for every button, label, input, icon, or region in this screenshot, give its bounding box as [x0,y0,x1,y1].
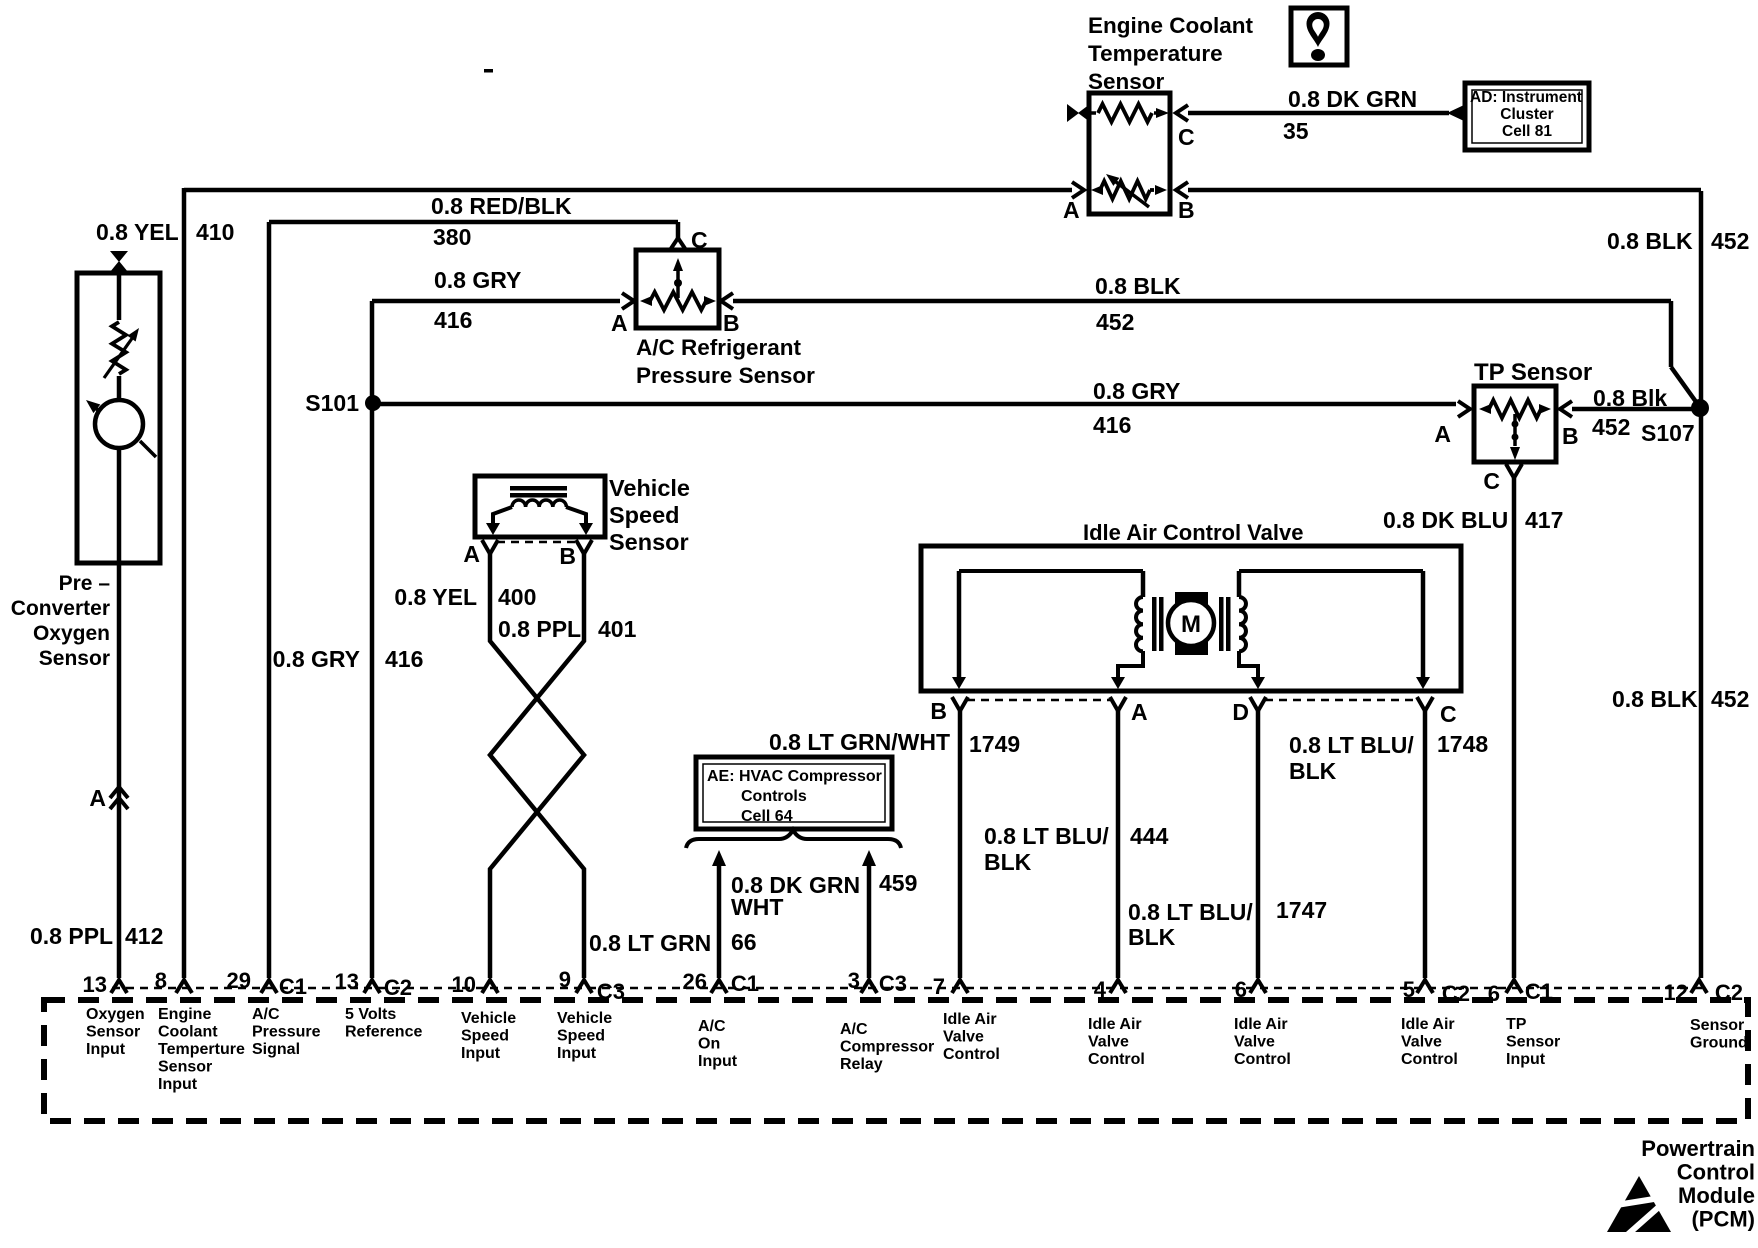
svg-text:TP: TP [1506,1016,1527,1033]
svg-text:0.8 PPL: 0.8 PPL [498,616,581,642]
svg-text:0.8 LT BLU/: 0.8 LT BLU/ [1289,732,1414,758]
svg-text:A: A [1434,421,1451,447]
svg-text:Compressor: Compressor [840,1039,934,1056]
svg-text:Sensor: Sensor [609,529,689,555]
svg-text:AE: HVAC Compressor: AE: HVAC Compressor [707,768,882,785]
svg-text:Vehicle: Vehicle [461,1010,516,1027]
svg-text:Sensor: Sensor [158,1059,212,1076]
svg-text:Sensor: Sensor [1690,1017,1744,1034]
svg-text:On: On [698,1036,720,1053]
svg-text:A: A [611,310,628,336]
svg-text:A: A [463,541,480,567]
svg-text:35: 35 [1283,118,1309,144]
svg-text:Powertrain: Powertrain [1641,1136,1755,1161]
svg-text:8: 8 [155,968,167,993]
svg-text:0.8 GRY: 0.8 GRY [1093,378,1180,404]
svg-text:Cell 64: Cell 64 [741,808,793,825]
svg-text:Temperature: Temperature [1088,41,1223,66]
svg-text:Input: Input [86,1041,126,1058]
svg-text:0.8 DK BLU: 0.8 DK BLU [1383,507,1508,533]
svg-text:Valve: Valve [1234,1034,1275,1051]
svg-text:7: 7 [933,974,945,999]
svg-text:Idle Air: Idle Air [1401,1016,1455,1033]
svg-text:Engine Coolant: Engine Coolant [1088,13,1254,38]
svg-text:C3: C3 [597,979,625,1004]
svg-text:Speed: Speed [557,1028,605,1045]
svg-text:452: 452 [1096,309,1134,335]
svg-text:0.8 LT GRN: 0.8 LT GRN [589,930,711,956]
svg-text:M: M [1181,611,1201,638]
svg-text:Converter: Converter [11,597,110,620]
svg-text:C2: C2 [1442,981,1470,1006]
svg-text:0.8 BLK: 0.8 BLK [1612,686,1698,712]
svg-text:Idle Air: Idle Air [943,1011,997,1028]
svg-text:Oxygen: Oxygen [86,1006,145,1023]
svg-text:A/C: A/C [698,1018,726,1035]
svg-text:A/C Refrigerant: A/C Refrigerant [636,335,802,360]
svg-text:A/C: A/C [252,1006,280,1023]
svg-text:452: 452 [1711,686,1749,712]
svg-text:Sensor: Sensor [1088,69,1165,94]
svg-text:TP Sensor: TP Sensor [1474,359,1592,386]
svg-text:Idle Air Control Valve: Idle Air Control Valve [1083,520,1303,545]
svg-text:B: B [1562,423,1579,449]
svg-text:0.8 LT GRN/WHT: 0.8 LT GRN/WHT [769,729,950,755]
svg-text:Relay: Relay [840,1056,883,1073]
svg-text:459: 459 [879,870,917,896]
svg-text:C3: C3 [879,971,907,996]
svg-text:Input: Input [158,1076,198,1093]
svg-text:452: 452 [1592,414,1630,440]
svg-text:Speed: Speed [609,502,680,528]
svg-text:Reference: Reference [345,1024,422,1041]
svg-text:Cell 81: Cell 81 [1502,123,1552,140]
svg-text:S101: S101 [305,390,359,416]
svg-text:C: C [691,227,708,253]
svg-text:412: 412 [125,923,163,949]
svg-text:C: C [1483,468,1500,494]
svg-text:380: 380 [433,224,471,250]
svg-text:B: B [930,698,947,724]
svg-text:416: 416 [434,307,472,333]
svg-text:C1: C1 [731,971,759,996]
svg-text:3: 3 [848,968,860,993]
svg-text:0.8 LT BLU/: 0.8 LT BLU/ [984,823,1109,849]
svg-text:Control: Control [1401,1051,1458,1068]
svg-text:Module: Module [1678,1183,1755,1208]
svg-text:C: C [1440,701,1457,727]
svg-text:0.8 RED/BLK: 0.8 RED/BLK [431,193,572,219]
svg-text:452: 452 [1711,228,1749,254]
svg-text:1747: 1747 [1276,897,1327,923]
svg-text:D: D [1232,699,1249,725]
svg-text:A: A [1063,197,1080,223]
svg-text:Pressure Sensor: Pressure Sensor [636,363,815,388]
svg-text:Sensor: Sensor [1506,1034,1560,1051]
svg-text:400: 400 [498,584,536,610]
svg-text:AD: Instrument: AD: Instrument [1470,89,1582,106]
svg-text:Speed: Speed [461,1028,509,1045]
svg-text:0.8 GRY: 0.8 GRY [434,267,521,293]
svg-text:B: B [559,543,576,569]
svg-text:417: 417 [1525,507,1563,533]
svg-text:Input: Input [461,1045,501,1062]
svg-text:66: 66 [731,929,757,955]
svg-text:0.8 YEL: 0.8 YEL [394,584,477,610]
svg-text:C2: C2 [384,975,412,1000]
svg-text:9: 9 [559,967,571,992]
svg-text:444: 444 [1130,823,1169,849]
svg-text:6: 6 [1488,981,1500,1006]
svg-text:Vehicle: Vehicle [609,475,690,501]
svg-text:1748: 1748 [1437,731,1488,757]
svg-text:10: 10 [452,972,476,997]
svg-text:26: 26 [683,969,707,994]
svg-text:Coolant: Coolant [158,1024,218,1041]
svg-text:Engine: Engine [158,1006,211,1023]
svg-text:Oxygen: Oxygen [33,622,110,645]
svg-text:0.8 BLK: 0.8 BLK [1607,228,1693,254]
svg-text:(PCM): (PCM) [1691,1207,1755,1232]
svg-text:416: 416 [385,646,423,672]
svg-text:S107: S107 [1641,420,1695,446]
svg-text:Input: Input [557,1045,597,1062]
svg-text:0.8 Blk: 0.8 Blk [1593,385,1667,411]
svg-text:0.8 DK GRN: 0.8 DK GRN [1288,86,1417,112]
svg-text:Valve: Valve [1401,1034,1442,1051]
svg-text:A/C: A/C [840,1021,868,1038]
svg-text:Control: Control [1677,1160,1755,1185]
svg-text:Signal: Signal [252,1041,300,1058]
svg-text:Ground: Ground [1690,1035,1748,1052]
svg-text:Control: Control [1234,1051,1291,1068]
svg-text:C2: C2 [1715,980,1743,1005]
svg-text:1749: 1749 [969,731,1020,757]
svg-text:Idle Air: Idle Air [1088,1016,1142,1033]
svg-text:4: 4 [1094,977,1107,1002]
svg-text:0.8 GRY: 0.8 GRY [273,646,360,672]
svg-text:Temperture: Temperture [158,1041,245,1058]
svg-text:Input: Input [698,1053,738,1070]
svg-text:5 Volts: 5 Volts [345,1006,396,1023]
svg-text:Input: Input [1506,1051,1546,1068]
svg-text:B: B [723,310,740,336]
svg-text:410: 410 [196,219,234,245]
svg-text:A: A [89,785,106,811]
svg-text:0.8 BLK: 0.8 BLK [1095,273,1181,299]
svg-text:Cluster: Cluster [1500,106,1553,123]
svg-text:Sensor: Sensor [86,1024,140,1041]
svg-text:0.8 LT BLU/: 0.8 LT BLU/ [1128,899,1253,925]
svg-text:C: C [1178,124,1195,150]
svg-text:0.8 YEL: 0.8 YEL [96,219,179,245]
svg-text:Valve: Valve [1088,1034,1129,1051]
svg-text:13: 13 [83,972,107,997]
svg-text:12: 12 [1664,980,1688,1005]
svg-text:5: 5 [1403,977,1415,1002]
svg-text:Sensor: Sensor [39,647,110,670]
svg-text:29: 29 [227,968,251,993]
svg-text:Pressure: Pressure [252,1024,321,1041]
svg-text:C1: C1 [1525,979,1553,1004]
svg-text:Control: Control [943,1046,1000,1063]
svg-text:Valve: Valve [943,1029,984,1046]
svg-text:Pre –: Pre – [59,572,111,595]
svg-text:WHT: WHT [731,894,783,920]
svg-text:401: 401 [598,616,637,642]
svg-text:A: A [1131,699,1148,725]
svg-text:C1: C1 [279,974,307,999]
svg-text:Control: Control [1088,1051,1145,1068]
svg-text:BLK: BLK [984,849,1032,875]
svg-text:Idle Air: Idle Air [1234,1016,1288,1033]
svg-text:0.8 PPL: 0.8 PPL [30,923,113,949]
svg-text:BLK: BLK [1128,924,1176,950]
svg-text:B: B [1178,197,1195,223]
svg-text:13: 13 [335,969,359,994]
svg-text:6: 6 [1235,977,1247,1002]
svg-text:BLK: BLK [1289,758,1337,784]
svg-text:Vehicle: Vehicle [557,1010,612,1027]
svg-text:Controls: Controls [741,788,807,805]
svg-text:416: 416 [1093,412,1131,438]
